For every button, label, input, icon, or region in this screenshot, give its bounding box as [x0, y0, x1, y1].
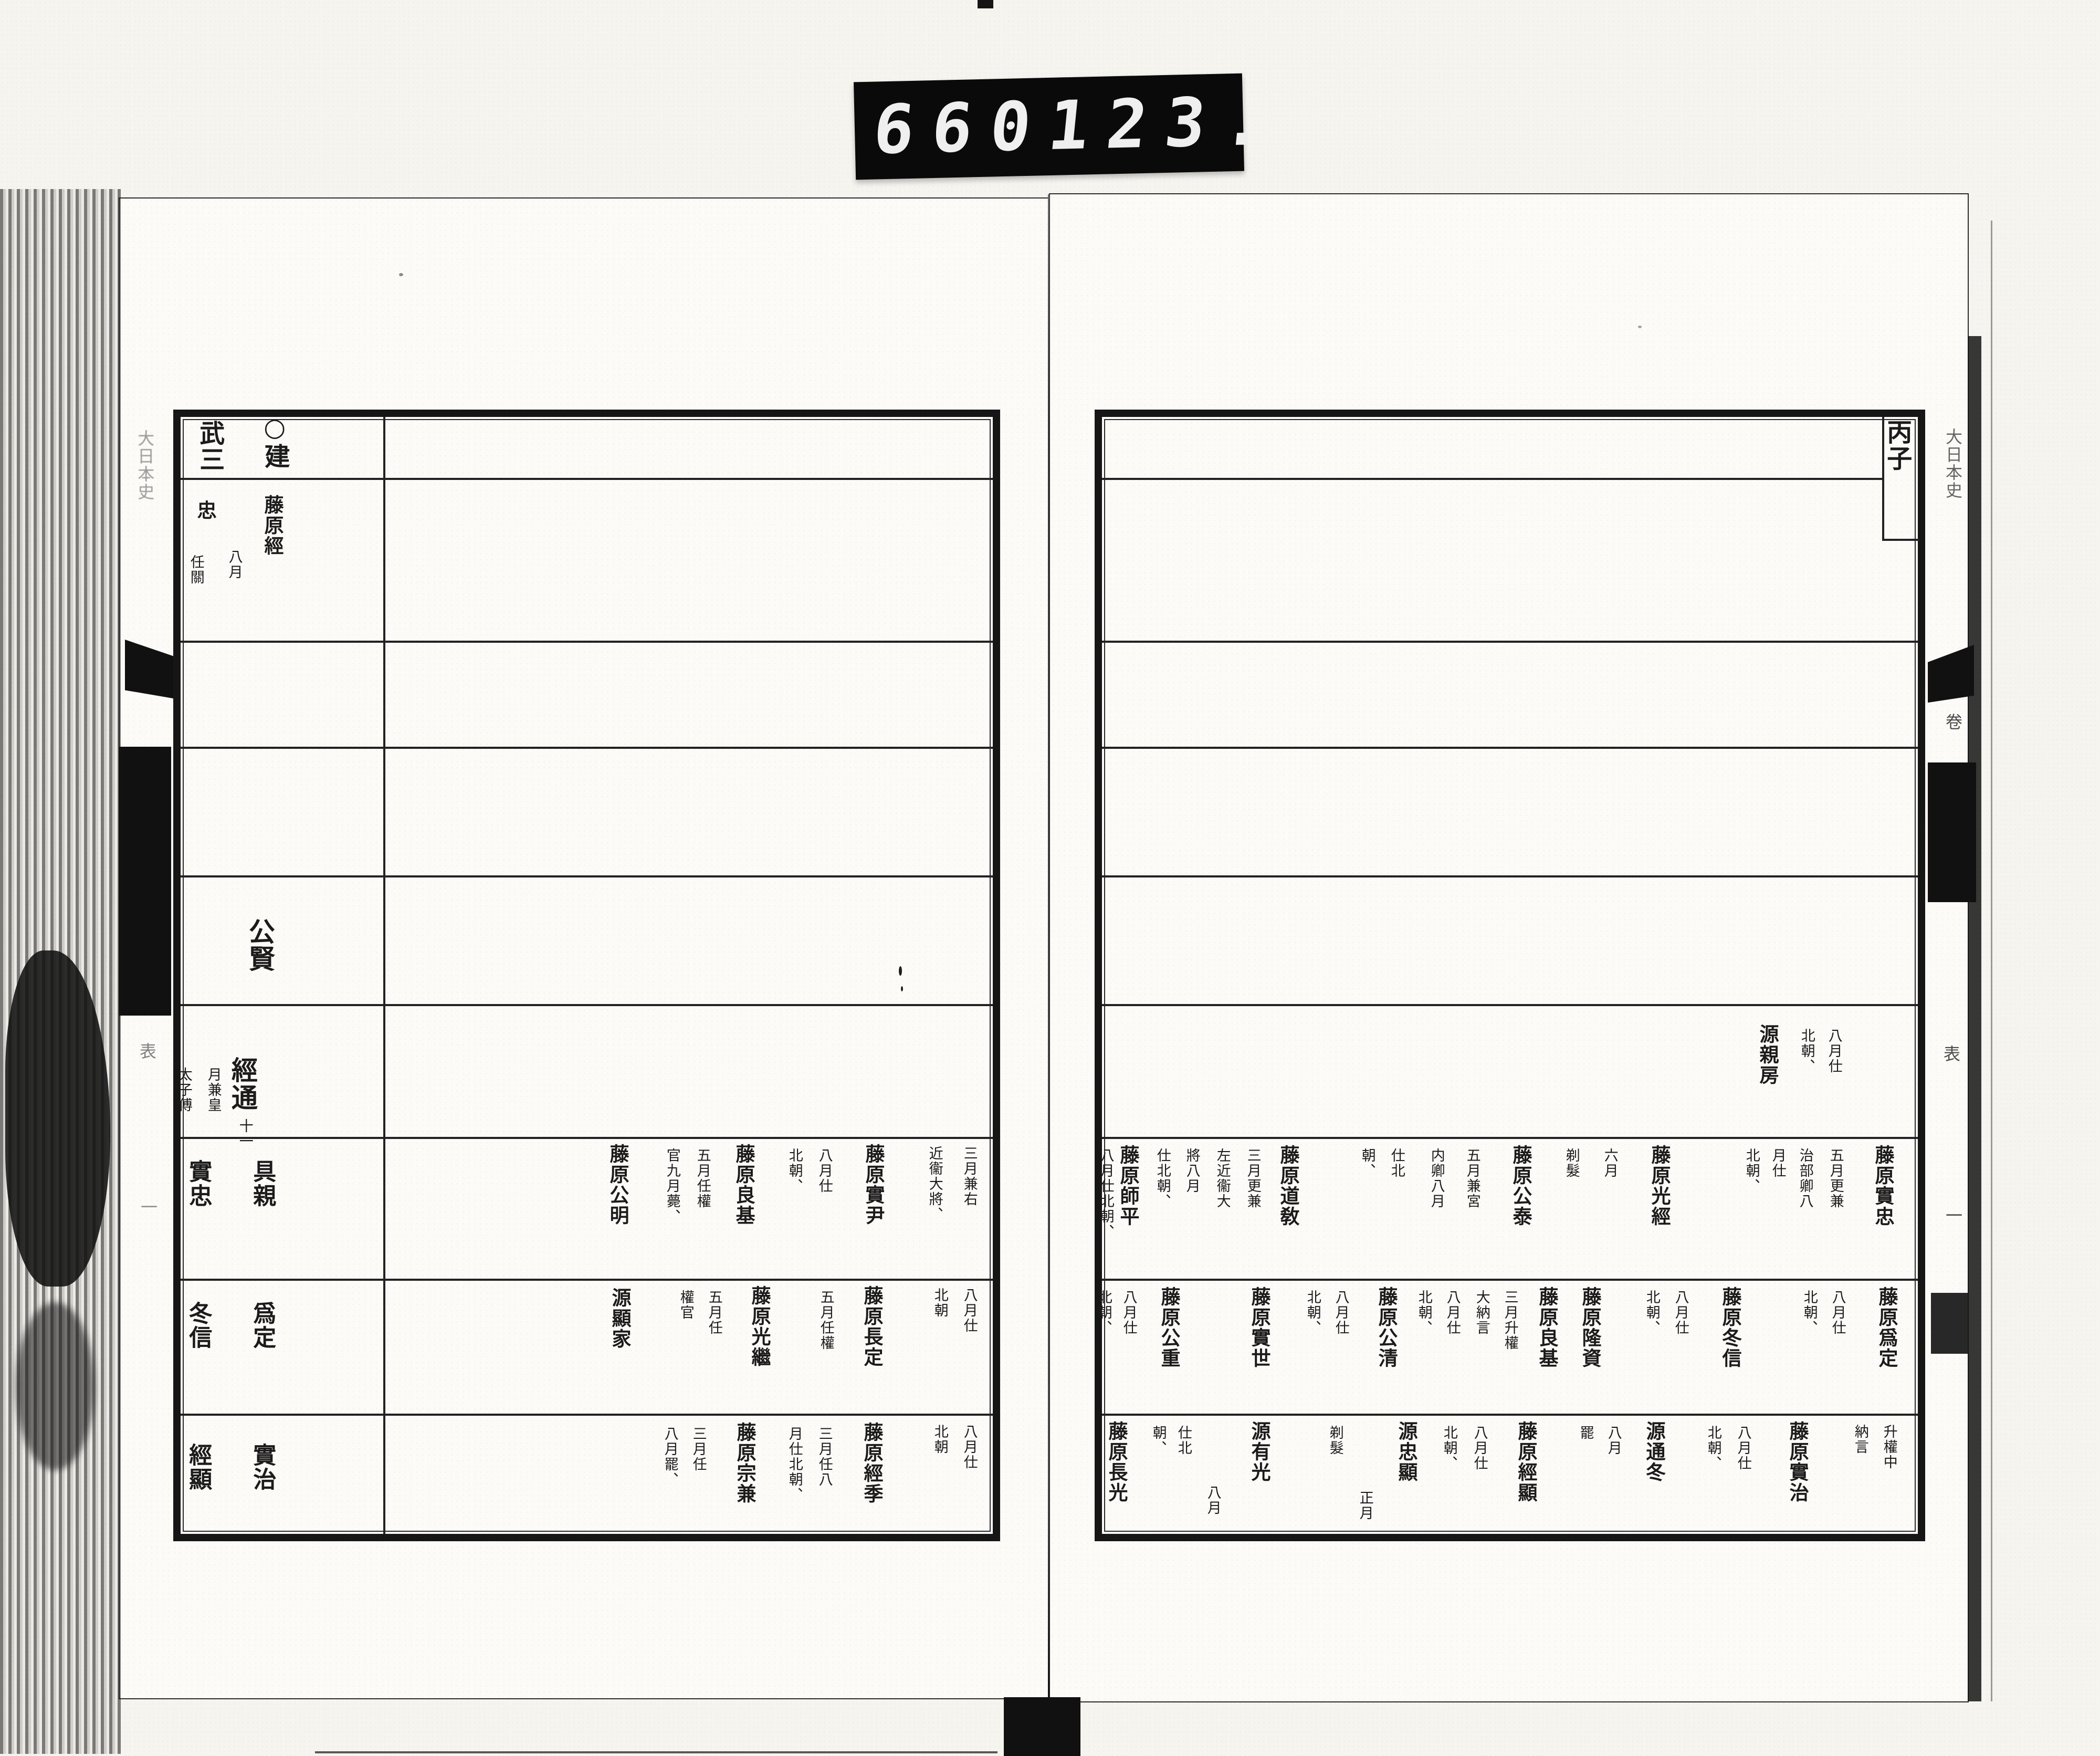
left-margin-black-bar — [119, 747, 171, 1016]
scan-speck — [899, 966, 902, 976]
right-page-note-column: 北朝、 — [1799, 1028, 1814, 1074]
right-page-note-column: 八月仕 — [1673, 1290, 1688, 1335]
right-page-note-column: 正月 — [1357, 1490, 1373, 1521]
right-page-name-column: 藤原實忠 — [1872, 1145, 1893, 1227]
right-page-edge-bar — [1968, 336, 1981, 1701]
frame-counter-plaque: 660 123. — [854, 74, 1244, 180]
table-row-rule — [1102, 1004, 1918, 1006]
right-page-note-column: 剃髮 — [1563, 1148, 1579, 1178]
right-page-note-column: 北朝、 — [1705, 1425, 1721, 1471]
right-page-note-column: 北朝、 — [1744, 1148, 1759, 1194]
right-page-note-column: 三月升權 — [1502, 1290, 1518, 1351]
left-page-name-column: 實忠 — [185, 1159, 211, 1208]
right-page-name-column: 藤原公泰 — [1510, 1145, 1531, 1227]
left-page-name-column: 藤原光繼 — [749, 1285, 770, 1367]
scan-artifact-tick — [978, 0, 993, 8]
right-page-note-column: 五月兼宮 — [1464, 1148, 1480, 1209]
right-page-note-column: 北朝、 — [1441, 1425, 1457, 1471]
right-page-note-column: 仕北 — [1389, 1148, 1404, 1178]
scan-speck — [399, 273, 403, 276]
right-page-note-column: 罷 — [1578, 1425, 1593, 1440]
right-page-name-column: 藤原師平 — [1117, 1145, 1138, 1227]
right-page-name-column: 藤原冬信 — [1719, 1287, 1740, 1368]
left-page-note-column: 北朝、 — [786, 1148, 802, 1194]
left-table-column-divider — [383, 417, 385, 1534]
right-page-note-column: 八月仕北朝、 — [1098, 1148, 1114, 1239]
left-page-note-column: 五月任 — [706, 1290, 722, 1335]
right-page-note-column: 八月 — [1205, 1485, 1221, 1515]
right-page-note-column: 八月仕 — [1444, 1290, 1460, 1335]
left-margin-table-mark: 表 — [134, 1042, 160, 1060]
right-page-name-column: 源忠顯 — [1395, 1421, 1416, 1482]
right-page-note-column: 北朝、 — [1305, 1290, 1320, 1335]
frame-counter-left: 660 — [870, 93, 1052, 164]
right-margin-table-mark: 表 — [1938, 1045, 1963, 1063]
left-page-name-column: 經通 — [228, 1057, 257, 1111]
right-page-name-column: 源親房 — [1757, 1024, 1778, 1085]
right-table-inner-border — [1104, 419, 1916, 1532]
right-page-name-column: 藤原實世 — [1248, 1287, 1269, 1368]
table-row-rule — [1102, 1414, 1918, 1416]
right-page-name-column: 藤原公重 — [1158, 1287, 1179, 1368]
right-page-name-column: 藤原隆資 — [1579, 1287, 1600, 1368]
table-row-rule — [1102, 478, 1882, 480]
left-page-note-column: 八月罷、 — [662, 1426, 678, 1487]
scan-speck — [901, 986, 903, 991]
left-page-note-column: 北朝 — [932, 1424, 948, 1455]
spine-shadow-blob2 — [16, 1302, 94, 1470]
book-gutter-fold — [1048, 194, 1049, 1700]
right-page-name-column: 藤原良基 — [1536, 1287, 1557, 1368]
left-page-note-column: 三月兼右 — [961, 1146, 977, 1207]
scanned-book-spread: 660 123. 大日本史 表 一 大日本史 卷 表 一 丙子八月仕北朝、源親房… — [0, 0, 2100, 1756]
left-page-name-column: 藤原公明 — [607, 1144, 628, 1226]
right-page-note-column: 剃髮 — [1327, 1425, 1343, 1456]
right-page-name-column: 源有光 — [1248, 1421, 1269, 1482]
left-page-year-label: 武三 — [195, 420, 224, 473]
left-page-note-column: 八月仕 — [961, 1288, 977, 1333]
left-page-note-column: 八月 — [226, 549, 242, 580]
right-margin-volume: 卷 — [1940, 713, 1966, 731]
right-page-note-column: 八月仕 — [1826, 1028, 1842, 1074]
table-row-rule — [181, 1004, 993, 1006]
right-margin-black-bar — [1928, 762, 1976, 902]
left-page-note-column: 三月任八 — [816, 1426, 832, 1487]
right-page-edge-line — [1991, 221, 1992, 1701]
scan-speck — [1638, 326, 1642, 328]
left-page-note-column: 八月仕 — [961, 1424, 977, 1470]
table-row-rule — [181, 1414, 993, 1416]
right-page-note-column: 仕北 — [1175, 1425, 1191, 1456]
left-page-name-column: 藤原長定 — [861, 1285, 882, 1367]
left-page-name-column: 藤原宗兼 — [734, 1422, 755, 1504]
right-margin-number: 一 — [1940, 1207, 1966, 1225]
left-page-name-column: 藤原實尹 — [863, 1144, 884, 1226]
right-page-note-column: 八月仕 — [1121, 1290, 1137, 1335]
right-table — [1095, 410, 1925, 1541]
left-page-year-label: ○建 — [260, 413, 289, 469]
left-page-note-column: 三月任 — [690, 1426, 706, 1472]
right-page-name-column: 藤原爲定 — [1876, 1287, 1897, 1368]
page-bottom-edge-line — [315, 1751, 997, 1753]
left-page-name-column: 具親 — [249, 1159, 275, 1208]
right-margin-title: 大日本史 — [1940, 428, 1966, 499]
left-page-name-column: 爲定 — [249, 1301, 275, 1350]
left-page-name-column: 源顯家 — [609, 1288, 630, 1349]
table-row-rule — [181, 641, 993, 643]
left-page-note-column: 任關 — [188, 555, 204, 585]
right-page-note-column: 北朝、 — [1644, 1290, 1660, 1335]
left-page-name-column: 藤原經季 — [861, 1422, 882, 1504]
left-page-note-column: 月仕北朝、 — [786, 1426, 802, 1502]
right-page-note-column: 升權中 — [1881, 1424, 1897, 1470]
frame-counter-right: 123. — [1045, 88, 1285, 160]
left-page-note-column: 十一 — [237, 1119, 253, 1149]
left-page-note-column: 五月任權 — [818, 1290, 834, 1351]
left-page-name-column: 忠 — [194, 500, 215, 520]
left-table — [173, 410, 1000, 1541]
table-row-rule — [1102, 1137, 1918, 1139]
left-page-note-column: 近衞大將、 — [927, 1146, 942, 1222]
left-page-note-column: 權官 — [678, 1290, 694, 1320]
right-page-note-column: 月仕 — [1770, 1148, 1786, 1178]
left-page-note-column: 太子傅 — [176, 1067, 192, 1113]
right-page-note-column: 北朝、 — [1801, 1290, 1817, 1335]
gutter-shadow-blob — [1004, 1697, 1080, 1756]
left-page-note-column: 北朝 — [932, 1288, 948, 1318]
right-page-note-column: 仕北朝、 — [1154, 1148, 1170, 1209]
right-page-note-column: 左近衞大 — [1214, 1148, 1230, 1209]
left-page-note-column: 官九月薨、 — [664, 1148, 680, 1224]
right-page-name-column: 藤原公清 — [1375, 1287, 1396, 1368]
left-page-note-column: 五月任權 — [695, 1148, 710, 1209]
right-page-note-column: 八月 — [1605, 1425, 1621, 1456]
right-page-note-column: 朝、 — [1359, 1148, 1375, 1178]
left-margin-title: 大日本史 — [131, 430, 158, 501]
right-margin-small-block — [1931, 1293, 1968, 1354]
left-page-name-column: 經顯 — [185, 1443, 211, 1491]
right-page-note-column: 八月仕 — [1472, 1425, 1487, 1471]
right-page-note-column: 内卿八月 — [1429, 1148, 1444, 1209]
right-page-note-column: 大納言 — [1474, 1290, 1489, 1335]
right-page-year-label: 丙子 — [1882, 419, 1911, 472]
right-page-note-column: 朝、 — [1150, 1425, 1166, 1456]
right-page-note-column: 八月仕 — [1333, 1290, 1349, 1335]
right-page-note-column: 六月 — [1602, 1148, 1618, 1178]
table-row-rule — [181, 478, 993, 480]
left-page-name-column: 藤原良基 — [733, 1144, 754, 1226]
left-page-name-column: 藤原經 — [261, 495, 282, 556]
table-row-rule — [1102, 1279, 1918, 1281]
left-page-name-column: 公賢 — [245, 918, 275, 973]
right-page-note-column: 五月更兼 — [1828, 1148, 1843, 1209]
table-row-rule — [181, 1137, 993, 1139]
right-page-name-column: 藤原實治 — [1787, 1421, 1808, 1503]
right-page-note-column: 治部卿八 — [1797, 1148, 1813, 1209]
right-page-note-column: 納言 — [1852, 1424, 1868, 1455]
table-row-rule — [181, 875, 993, 877]
right-page-note-column: 三月更兼 — [1245, 1148, 1261, 1209]
left-page-name-column: 實治 — [249, 1443, 275, 1491]
left-margin-number: 一 — [135, 1198, 161, 1216]
right-page-name-column: 藤原長光 — [1106, 1421, 1127, 1503]
table-row-rule — [1102, 747, 1918, 749]
right-page-name-column: 藤原道敎 — [1277, 1145, 1298, 1227]
right-page-name-column: 源通冬 — [1643, 1421, 1664, 1482]
table-row-rule — [1102, 875, 1918, 877]
left-page-note-column: 八月仕 — [816, 1148, 832, 1194]
right-page-name-column: 藤原經顯 — [1515, 1421, 1536, 1503]
right-page-note-column: 北朝、 — [1416, 1290, 1432, 1335]
right-page-note-column: 將八月 — [1184, 1148, 1200, 1194]
right-page-note-column: 八月仕 — [1830, 1290, 1845, 1335]
table-row-rule — [181, 1279, 993, 1281]
table-row-rule — [1102, 641, 1918, 643]
right-page-note-column: 北朝、 — [1096, 1290, 1111, 1335]
right-page-name-column: 藤原光經 — [1648, 1145, 1669, 1227]
left-page-name-column: 冬信 — [185, 1301, 211, 1350]
left-page-note-column: 月兼皇 — [205, 1067, 221, 1113]
table-row-rule — [181, 747, 993, 749]
right-page-note-column: 八月仕 — [1735, 1425, 1751, 1471]
